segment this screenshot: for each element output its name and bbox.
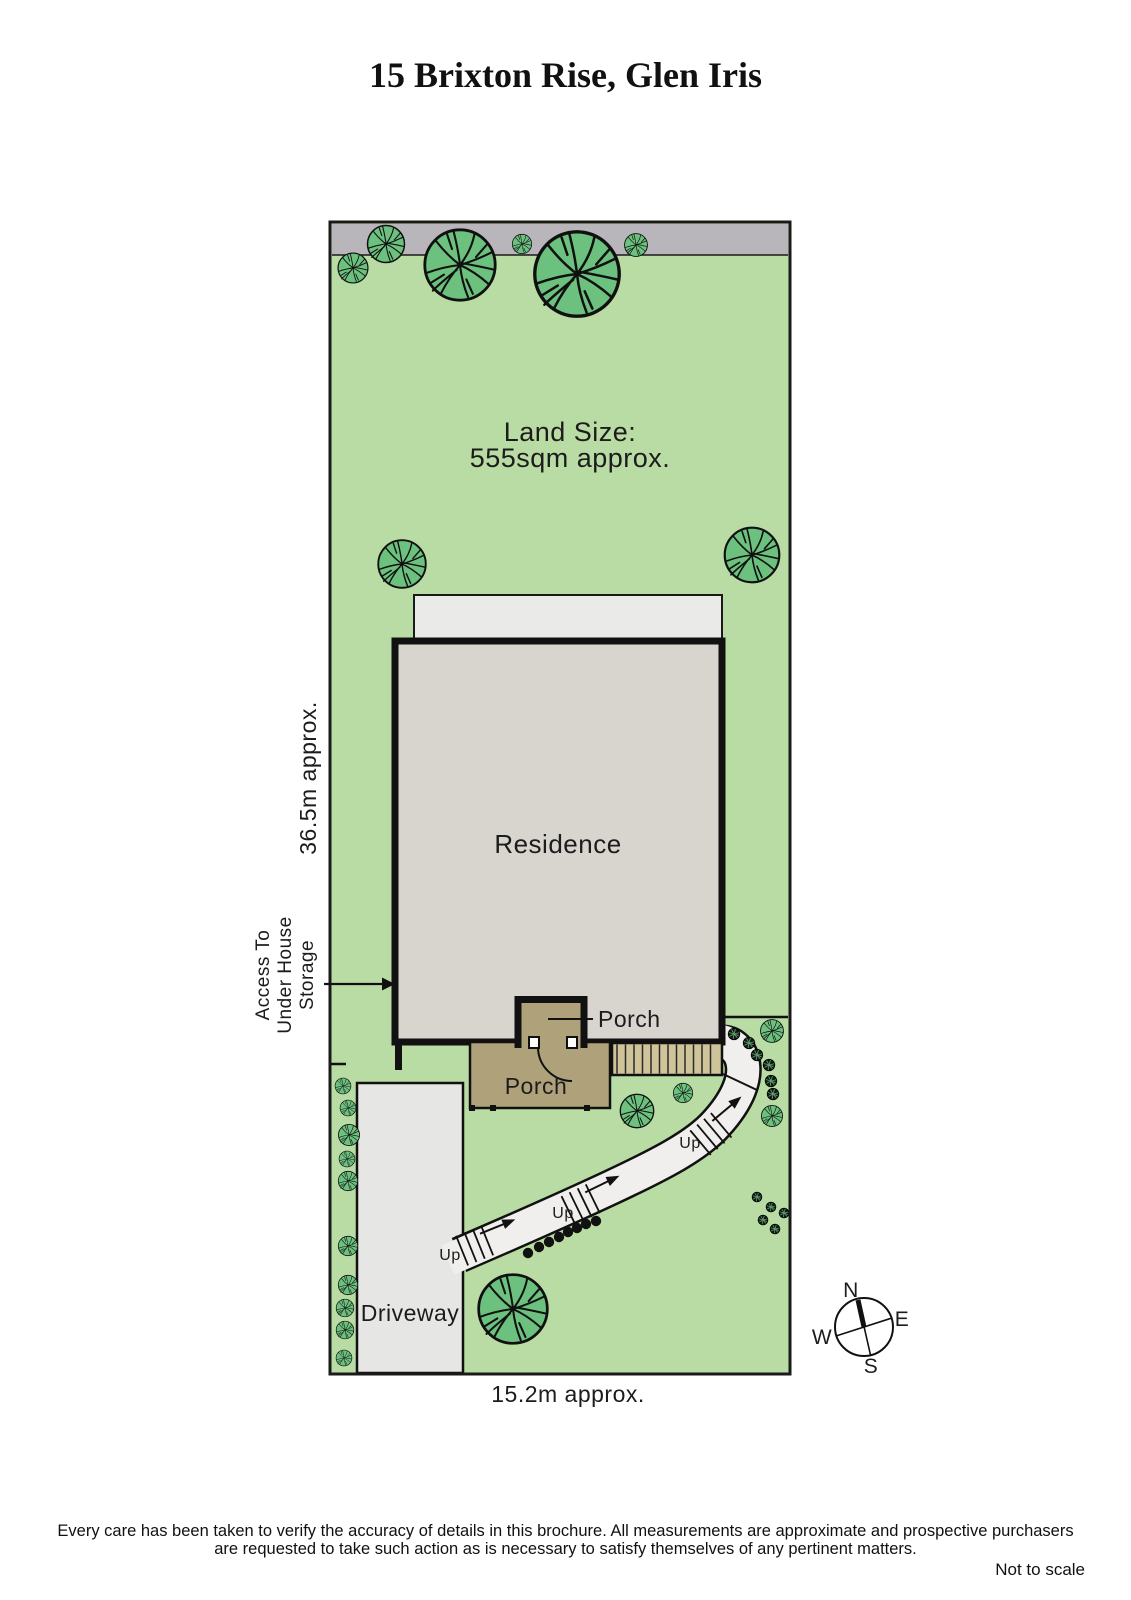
tree-icon xyxy=(338,1275,357,1294)
shrub-icon xyxy=(743,1037,754,1048)
tree-icon xyxy=(673,1083,692,1102)
planting-dot xyxy=(572,1223,582,1233)
porch-inner-label: Porch xyxy=(598,1006,661,1032)
tree-icon xyxy=(620,1094,653,1127)
shrub-icon xyxy=(770,1224,780,1234)
porch-lower-label: Porch xyxy=(505,1073,568,1099)
scale-note: Not to scale xyxy=(995,1560,1085,1580)
tree-icon xyxy=(761,1020,784,1043)
shrub-icon xyxy=(763,1059,774,1070)
door-post xyxy=(529,1037,539,1048)
door-post xyxy=(567,1037,577,1048)
tree-icon xyxy=(625,234,648,257)
planting-dot xyxy=(591,1216,601,1226)
tree-icon xyxy=(338,1124,359,1145)
access-note-line1: Access To xyxy=(253,930,274,1021)
entry-steps xyxy=(612,1043,722,1075)
compass-e: E xyxy=(895,1308,910,1331)
disclaimer-line2: are requested to take such action as is … xyxy=(0,1540,1131,1558)
tree-icon xyxy=(425,230,495,300)
planting-dot xyxy=(554,1232,564,1242)
depth-dimension: 36.5m approx. xyxy=(295,701,321,855)
residence-label: Residence xyxy=(494,829,621,859)
compass-n: N xyxy=(843,1279,859,1302)
tree-icon xyxy=(479,1275,548,1344)
up-label: Up xyxy=(679,1135,700,1152)
tree-icon xyxy=(761,1105,782,1126)
compass-w: W xyxy=(812,1326,832,1349)
disclaimer-line1: Every care has been taken to verify the … xyxy=(0,1522,1131,1540)
tree-icon xyxy=(336,1321,354,1339)
shrub-icon xyxy=(728,1028,739,1039)
shrub-icon xyxy=(766,1202,776,1212)
tree-icon xyxy=(336,1299,354,1317)
shrub-icon xyxy=(758,1215,768,1225)
compass-s: S xyxy=(864,1355,879,1378)
porch-post-dot xyxy=(469,1105,475,1111)
porch-post-dot xyxy=(490,1105,496,1111)
planting-dot xyxy=(581,1219,591,1229)
shrub-icon xyxy=(767,1088,778,1099)
tree-icon xyxy=(338,1171,357,1190)
land-size-line2: 555sqm approx. xyxy=(470,443,671,473)
driveway-label: Driveway xyxy=(361,1300,460,1326)
tree-icon xyxy=(335,1078,351,1094)
shrub-icon xyxy=(752,1192,762,1202)
planting-dot xyxy=(544,1237,554,1247)
tree-icon xyxy=(338,253,368,283)
access-note-line3: Storage xyxy=(297,940,318,1010)
access-note-line2: Under House xyxy=(275,916,296,1033)
tree-icon xyxy=(368,226,405,263)
up-label: Up xyxy=(552,1205,573,1222)
site-plan: UpUpUp Land Size: 555sqm xyxy=(0,0,1131,1600)
tree-icon xyxy=(336,1350,352,1366)
shrub-icon xyxy=(751,1049,762,1060)
porch-post-dot xyxy=(584,1105,590,1111)
width-dimension: 15.2m approx. xyxy=(491,1381,645,1407)
shrub-icon xyxy=(779,1208,789,1218)
up-label: Up xyxy=(439,1247,460,1264)
tree-icon xyxy=(340,1100,356,1116)
tree-icon xyxy=(725,528,780,583)
tree-icon xyxy=(338,1236,357,1255)
tree-icon xyxy=(339,1151,355,1167)
planting-dot xyxy=(534,1242,544,1252)
compass-icon: N E S W xyxy=(812,1279,909,1378)
planting-dot xyxy=(563,1227,573,1237)
rear-eave xyxy=(414,595,722,643)
planting-dot xyxy=(523,1248,533,1258)
disclaimer: Every care has been taken to verify the … xyxy=(0,1522,1131,1558)
shrub-icon xyxy=(765,1075,776,1086)
access-note: Access To Under House Storage xyxy=(253,916,318,1033)
brochure-page: 15 Brixton Rise, Glen Iris xyxy=(0,0,1131,1600)
tree-icon xyxy=(512,234,531,253)
tree-icon xyxy=(535,232,619,316)
tree-icon xyxy=(378,540,426,588)
driveway xyxy=(357,1083,463,1373)
